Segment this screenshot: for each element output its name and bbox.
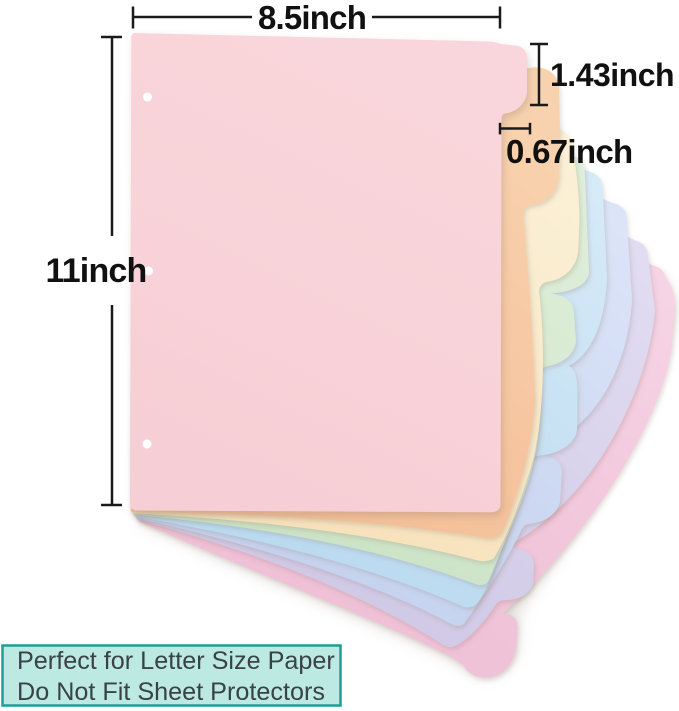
svg-text:0.67inch: 0.67inch [506,133,632,170]
svg-text:Perfect for Letter Size Paper: Perfect for Letter Size Paper [17,647,335,675]
svg-text:1.43inch: 1.43inch [550,57,674,93]
svg-text:11inch: 11inch [45,252,146,290]
svg-text:8.5inch: 8.5inch [258,0,366,36]
svg-text:Do Not Fit Sheet Protectors: Do Not Fit Sheet Protectors [17,678,325,706]
